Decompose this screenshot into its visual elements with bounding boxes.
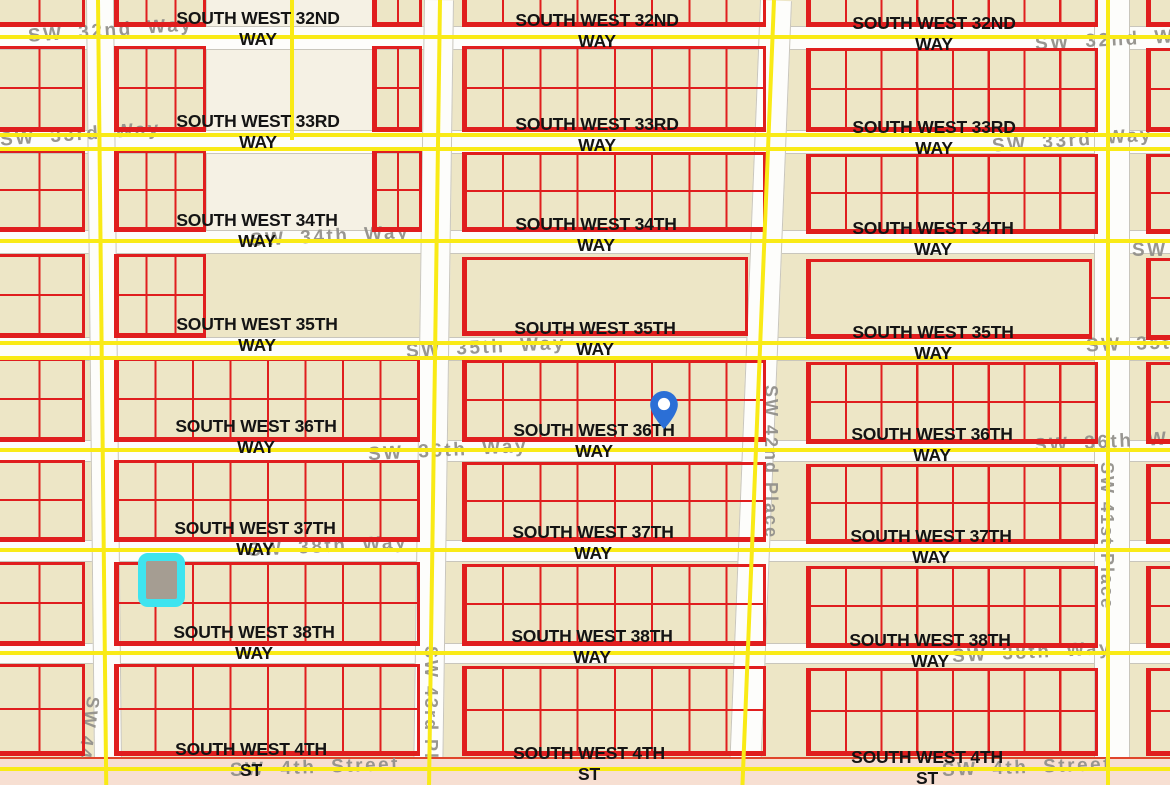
parcel-block <box>1146 566 1170 648</box>
parcel-block <box>0 254 85 338</box>
street-label: SOUTH WEST 34TH WAY <box>813 218 1053 260</box>
street-label: SOUTH WEST 37TH WAY <box>473 522 713 564</box>
street-label: SOUTH WEST 32ND WAY <box>814 13 1054 55</box>
parcel-block <box>1146 258 1170 340</box>
street-label: SOUTH WEST 35TH WAY <box>137 314 377 356</box>
street-label: SOUTH WEST 34TH WAY <box>476 214 716 256</box>
parcel-block <box>1146 668 1170 756</box>
parcel-block <box>372 150 422 232</box>
road-overlay-line-vertical <box>1106 0 1110 785</box>
street-label: SOUTH WEST 38TH WAY <box>472 626 712 668</box>
parcel-block <box>1146 362 1170 444</box>
street-label: SOUTH WEST 36TH WAY <box>812 424 1052 466</box>
street-label: SOUTH WEST 4TH ST <box>131 739 371 781</box>
parcel-block <box>0 46 85 132</box>
street-label: SOUTH WEST 32ND WAY <box>138 8 378 50</box>
street-label: SOUTH WEST 34TH WAY <box>137 210 377 252</box>
parcel-block <box>0 0 85 27</box>
street-label: SOUTH WEST 36TH WAY <box>136 416 376 458</box>
map-canvas[interactable]: SW 32nd WaySW 32nd WSW 33rd WaySW 33rd W… <box>0 0 1170 785</box>
parcel-block <box>0 664 85 756</box>
map-pin-icon[interactable] <box>650 391 678 429</box>
parcel-block <box>0 150 85 232</box>
street-label: SOUTH WEST 38TH WAY <box>134 622 374 664</box>
parcel-block <box>1146 48 1170 132</box>
parcel-block <box>806 668 1098 756</box>
parcel-block <box>0 562 85 646</box>
street-label: SOUTH WEST 33RD WAY <box>138 111 378 153</box>
parcel-block <box>0 358 85 442</box>
parcel-block <box>0 460 85 542</box>
parcel-block <box>1146 0 1170 27</box>
street-label: SOUTH WEST 4TH ST <box>469 743 709 785</box>
street-label: SOUTH WEST 32ND WAY <box>477 10 717 52</box>
street-label: SOUTH WEST 38TH WAY <box>810 630 1050 672</box>
street-label: SOUTH WEST 33RD WAY <box>814 117 1054 159</box>
street-label: SOUTH WEST 35TH WAY <box>475 318 715 360</box>
parcel-block <box>1146 464 1170 544</box>
street-label: SOUTH WEST 35TH WAY <box>813 322 1053 364</box>
street-label: SOUTH WEST 36TH WAY <box>474 420 714 462</box>
parcel-block <box>1146 154 1170 234</box>
street-label: SOUTH WEST 4TH ST <box>807 747 1047 785</box>
highlighted-parcel[interactable] <box>138 553 185 607</box>
parcel-block <box>372 46 422 132</box>
street-label: SOUTH WEST 37TH WAY <box>135 518 375 560</box>
parcel-block <box>372 0 422 27</box>
street-label: SOUTH WEST 33RD WAY <box>477 114 717 156</box>
street-label: SOUTH WEST 37TH WAY <box>811 526 1051 568</box>
street-band-vertical <box>1094 0 1130 785</box>
